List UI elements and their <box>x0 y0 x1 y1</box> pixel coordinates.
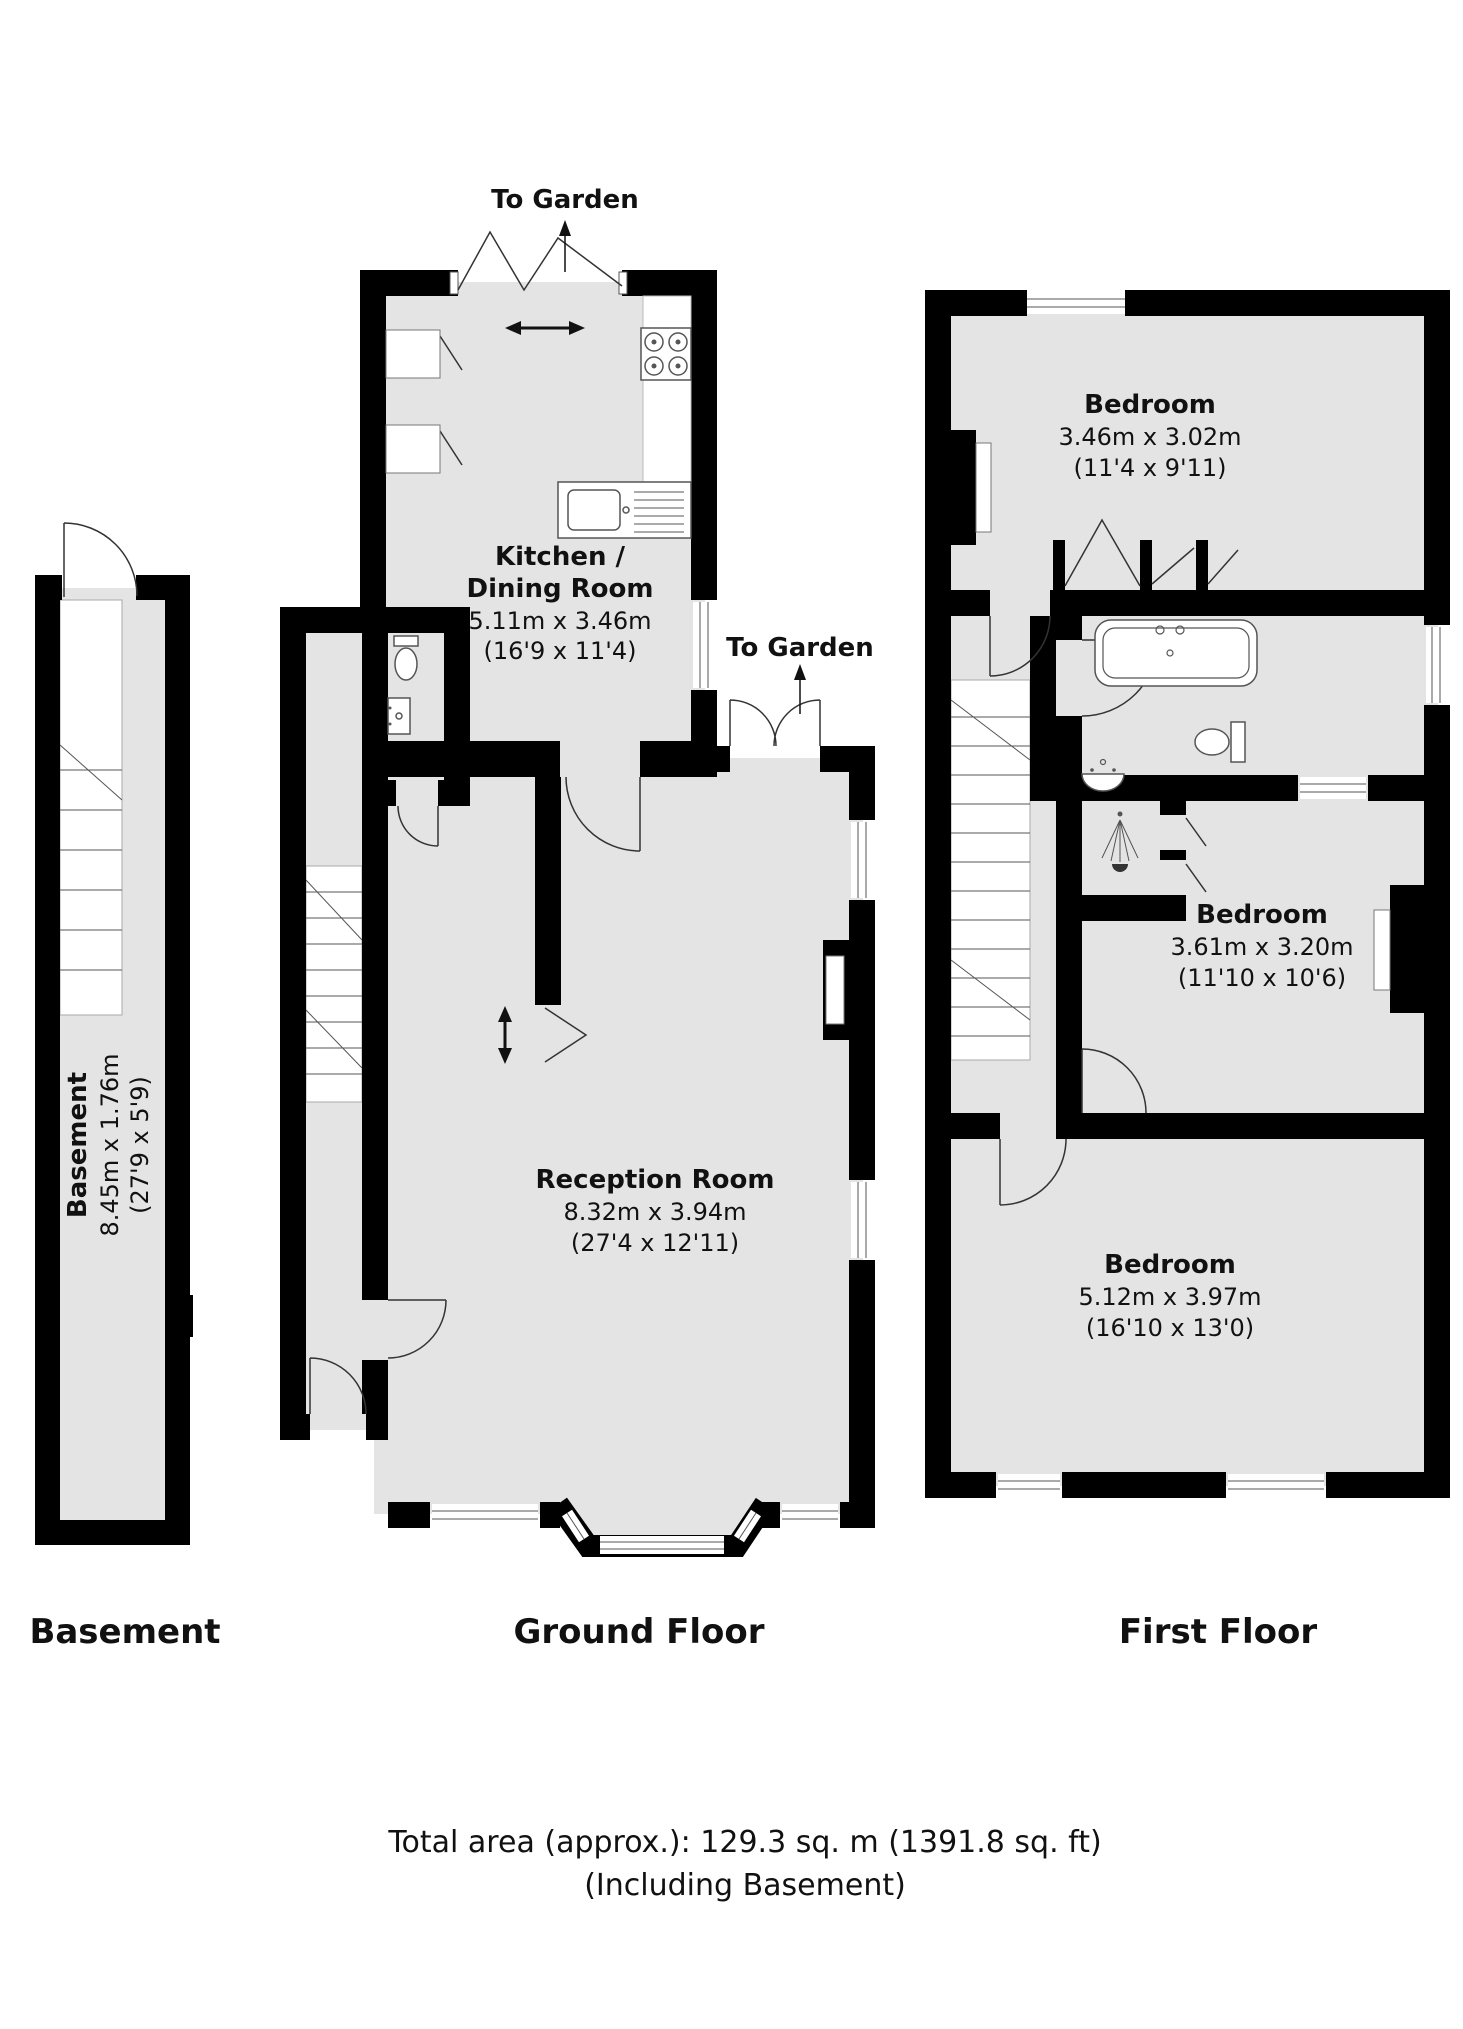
basement-title: Basement <box>29 1612 220 1652</box>
reception-dim-imperial: (27'4 x 12'11) <box>571 1229 739 1257</box>
hob-icon <box>641 328 691 380</box>
floorplan-page: To Garden To Garden Kitchen / Dining Roo… <box>0 0 1463 2025</box>
bathroom-window <box>1426 627 1448 703</box>
chimney-niche-bedroom-rear <box>976 443 991 532</box>
bedroom-rear-dim-imperial: (11'4 x 9'11) <box>1074 454 1227 482</box>
kitchen-dim-imperial: (16'9 x 11'4) <box>484 637 637 665</box>
ground-floor-title: Ground Floor <box>514 1612 765 1652</box>
total-area-text: Total area (approx.): 129.3 sq. m (1391.… <box>387 1825 1101 1860</box>
bedroom-middle-label: Bedroom <box>1196 900 1328 930</box>
basement-label-group: Basement 8.45m x 1.76m (27'9 x 5'9) <box>63 1053 154 1236</box>
basement-label: Basement <box>63 1072 93 1218</box>
front-window-left <box>432 1504 538 1526</box>
basement-door <box>64 523 137 597</box>
reception-window-rear <box>851 822 873 898</box>
bedroom-middle-window <box>1300 777 1366 799</box>
basement-stairs <box>60 600 122 1015</box>
bedroom-rear-label: Bedroom <box>1084 390 1216 420</box>
bedroom-front-window-left <box>998 1474 1060 1496</box>
french-doors-garden <box>730 700 820 746</box>
reception-dim-metric: 8.32m x 3.94m <box>563 1198 746 1226</box>
bath-icon <box>1095 620 1257 686</box>
reception-window-front-side <box>851 1182 873 1258</box>
front-window-right <box>782 1504 838 1526</box>
wc-toilet-icon <box>394 636 418 680</box>
chimney-niche-bedroom-middle <box>1374 910 1390 990</box>
wc-basin-icon <box>388 698 410 734</box>
kitchen-label-line1: Kitchen / <box>495 542 626 572</box>
floorplan-drawing: To Garden To Garden Kitchen / Dining Roo… <box>0 0 1463 2025</box>
basement-dim-imperial: (27'9 x 5'9) <box>126 1076 154 1214</box>
sink-icon <box>558 482 691 538</box>
reception-room <box>374 758 863 1514</box>
first-floor-stairs <box>951 680 1030 1060</box>
bedroom-rear-window <box>1027 292 1125 314</box>
to-garden-label-side: To Garden <box>726 633 874 663</box>
including-basement-text: (Including Basement) <box>584 1868 906 1903</box>
kitchen-dim-metric: 5.11m x 3.46m <box>468 607 651 635</box>
bedroom-front-dim-imperial: (16'10 x 13'0) <box>1086 1314 1254 1342</box>
bedroom-front-dim-metric: 5.12m x 3.97m <box>1078 1283 1261 1311</box>
reception-label: Reception Room <box>536 1165 775 1195</box>
to-garden-label-top: To Garden <box>491 185 639 215</box>
basement-dim-metric: 8.45m x 1.76m <box>96 1053 124 1236</box>
kitchen-window <box>693 602 715 688</box>
bedroom-middle-dim-imperial: (11'10 x 10'6) <box>1178 964 1346 992</box>
kitchen-counter <box>643 296 691 482</box>
bedroom-rear-dim-metric: 3.46m x 3.02m <box>1058 423 1241 451</box>
bedroom-front-label: Bedroom <box>1104 1250 1236 1280</box>
bedroom-front-window-right <box>1228 1474 1324 1496</box>
kitchen-label-line2: Dining Room <box>467 574 654 604</box>
ground-stairs <box>306 866 362 1102</box>
first-floor-title: First Floor <box>1119 1612 1318 1652</box>
bedroom-middle-dim-metric: 3.61m x 3.20m <box>1170 933 1353 961</box>
chimney-niche-reception <box>826 956 844 1024</box>
